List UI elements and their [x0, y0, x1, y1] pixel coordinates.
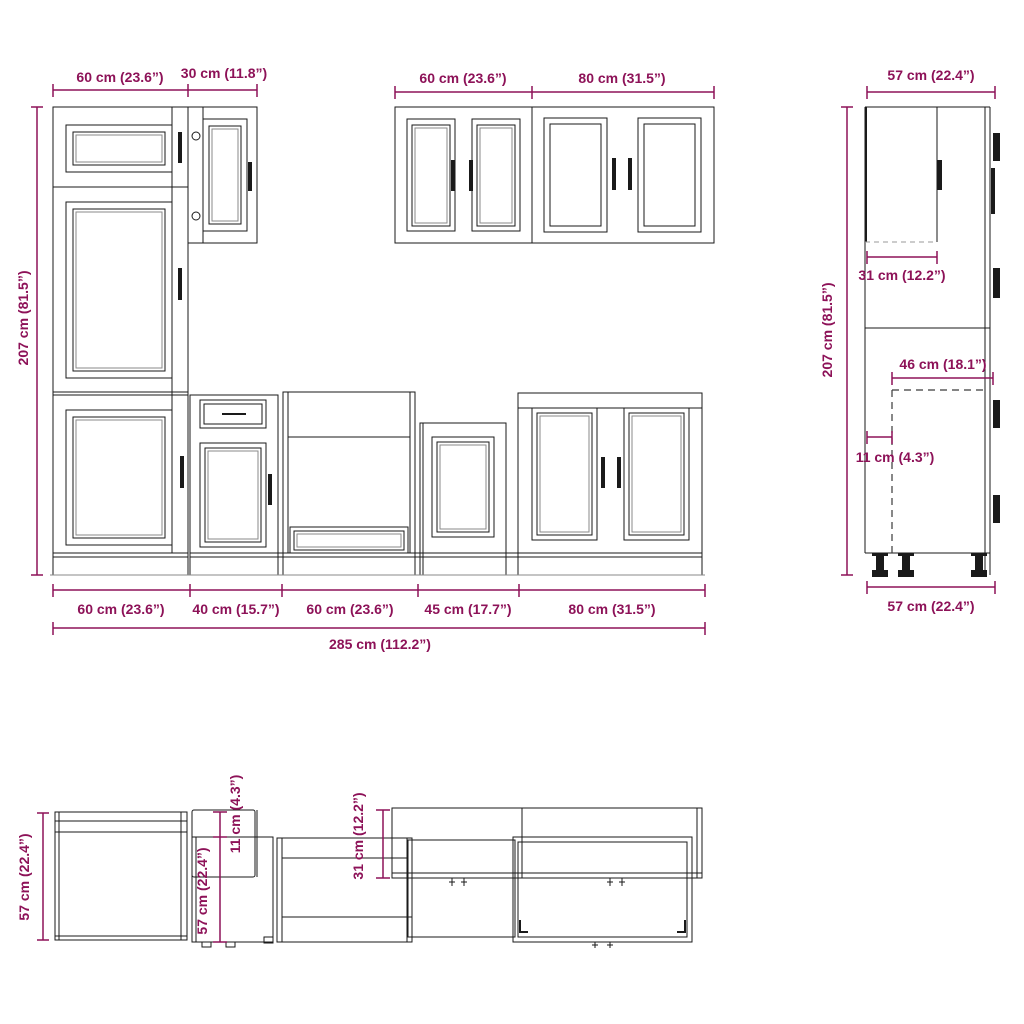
dim-side-bottom-depth: 57 cm (22.4”)	[887, 598, 974, 614]
base-cabinet-80	[518, 393, 702, 575]
wall-cabinet-80-handle-right	[628, 158, 632, 190]
dim-base-width-60a: 60 cm (23.6”)	[77, 601, 164, 617]
wall-cabinet-80-handle-left	[612, 158, 616, 190]
dim-total-width: 285 cm (112.2”)	[329, 636, 431, 652]
wall-cabinet-30	[188, 107, 257, 243]
base-cabinet-80-handle-left	[601, 457, 605, 488]
top-left-depth-dimension	[37, 813, 49, 940]
dim-mid-unit-depth: 57 cm (22.4”)	[194, 847, 210, 934]
top-view-base-60-left	[55, 812, 187, 940]
dim-front-offset: 11 cm (4.3”)	[856, 449, 935, 465]
front-top-dimension-lines	[53, 84, 714, 99]
wall-bracket-icon	[993, 495, 1000, 523]
wall-bracket-icon	[993, 400, 1000, 428]
base-cabinet-45-outline	[420, 423, 506, 575]
side-carcass-depth-dimension	[892, 372, 993, 385]
hinge-icon	[192, 212, 200, 220]
wall-cabinet-60	[395, 107, 532, 243]
top-view-base-60-outline	[55, 812, 187, 940]
dim-tall-unit-width: 60 cm (23.6”)	[76, 69, 163, 85]
dim-base-width-40: 40 cm (15.7”)	[192, 601, 279, 617]
tall-cabinet-60	[53, 107, 200, 575]
dim-left-unit-depth: 57 cm (22.4”)	[16, 833, 32, 920]
top-view-wall-80-outline	[522, 808, 702, 878]
wall-cabinet-80	[532, 107, 714, 243]
dim-side-top-depth: 57 cm (22.4”)	[887, 67, 974, 83]
side-top-dimension-line	[867, 86, 995, 99]
dim-base-width-45: 45 cm (17.7”)	[424, 601, 511, 617]
side-door-depth-dimension	[867, 251, 937, 264]
side-cabinet-body	[865, 107, 1000, 575]
base-cabinet-40-outline	[190, 395, 278, 575]
top-view-wall-80	[522, 808, 702, 886]
dim-side-panel-offset: 11 cm (4.3”)	[227, 775, 243, 854]
top-view-base-80-outline	[513, 837, 692, 942]
wall-bracket-icon	[993, 268, 1000, 298]
dim-upper-80-width: 80 cm (31.5”)	[578, 70, 665, 86]
top-view-base-45-outline	[408, 840, 515, 937]
technical-drawing-page: 60 cm (23.6”) 30 cm (11.8”) 60 cm (23.6”…	[0, 0, 1024, 1024]
wall-bracket-icon	[991, 168, 995, 214]
base-cabinet-45	[420, 393, 518, 575]
wall-cabinet-60-handle-left	[451, 160, 455, 191]
top-view-base-60-oven	[264, 838, 412, 943]
tall-cabinet-top-handle	[178, 132, 182, 163]
plinth-lines	[190, 553, 702, 557]
tall-cabinet-bottom-handle	[180, 456, 184, 488]
hinge-icon	[192, 132, 200, 140]
side-carcass-dashed	[892, 390, 985, 553]
side-front-offset-dimension	[867, 431, 892, 444]
base-cabinet-80-outline	[518, 393, 702, 575]
dim-upper-60-width: 60 cm (23.6”)	[419, 70, 506, 86]
cabinet-feet	[872, 553, 987, 577]
dim-upper-30-width: 30 cm (11.8”)	[181, 65, 267, 81]
side-bottom-dimension-line	[867, 581, 995, 594]
top-wall-depth-dimension	[376, 810, 390, 878]
dim-base-width-60b: 60 cm (23.6”)	[306, 601, 393, 617]
base-cabinet-80-handle-right	[617, 457, 621, 488]
top-view-base-45	[408, 840, 515, 937]
base-cabinet-60-outline	[283, 392, 415, 575]
dim-carcass-depth: 46 cm (18.1”)	[899, 356, 986, 372]
side-view: 57 cm (22.4”) 207 cm (81.5”) 31 cm (12.2…	[819, 67, 1000, 614]
wall-cabinet-60-handle-right	[469, 160, 473, 191]
wall-bracket-icon	[993, 133, 1000, 161]
corner-bracket-icon	[520, 920, 685, 932]
dim-base-width-80: 80 cm (31.5”)	[568, 601, 655, 617]
dim-side-total-height: 207 cm (81.5”)	[819, 283, 835, 378]
dim-upper-unit-depth: 31 cm (12.2”)	[350, 792, 366, 879]
wall-cabinet-80-outline	[532, 107, 714, 243]
top-view: 57 cm (22.4”) 57 cm (22.4”) 11 cm (4.3”)…	[16, 775, 702, 948]
dim-upper-door-depth: 31 cm (12.2”)	[858, 267, 945, 283]
side-height-dimension-line	[841, 107, 853, 575]
tall-cabinet-middle-handle	[178, 268, 182, 300]
base-cabinet-40	[190, 395, 278, 575]
kitchen-cabinet-diagram: 60 cm (23.6”) 30 cm (11.8”) 60 cm (23.6”…	[0, 0, 1024, 1024]
top-view-base-80	[513, 837, 692, 948]
dim-front-total-height: 207 cm (81.5”)	[15, 271, 31, 366]
wall-cabinet-30-handle	[248, 162, 252, 191]
front-height-dimension-line	[31, 107, 43, 575]
front-view: 60 cm (23.6”) 30 cm (11.8”) 60 cm (23.6”…	[15, 65, 714, 652]
side-door-handle	[937, 160, 942, 190]
base-cabinet-40-handle	[268, 474, 272, 505]
base-cabinet-60-oven	[283, 392, 415, 575]
